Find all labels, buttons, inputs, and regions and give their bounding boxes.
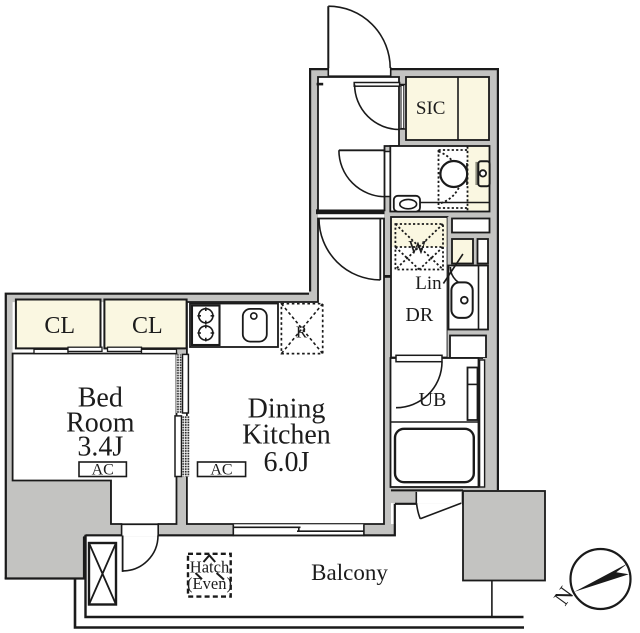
svg-text:AC: AC xyxy=(210,461,232,478)
svg-text:Lin: Lin xyxy=(415,273,442,294)
svg-text:R: R xyxy=(296,323,308,342)
svg-text:3.4J: 3.4J xyxy=(77,432,123,463)
svg-text:(Even): (Even) xyxy=(187,574,232,593)
svg-text:CL: CL xyxy=(44,313,75,339)
svg-text:SIC: SIC xyxy=(416,98,446,119)
svg-text:AC: AC xyxy=(92,461,114,478)
svg-text:UB: UB xyxy=(419,389,447,411)
svg-text:W: W xyxy=(409,238,427,259)
svg-text:DR: DR xyxy=(405,304,433,326)
svg-text:Kitchen: Kitchen xyxy=(242,420,331,451)
svg-text:Balcony: Balcony xyxy=(311,560,388,585)
svg-text:6.0J: 6.0J xyxy=(264,447,310,478)
svg-text:CL: CL xyxy=(132,313,163,339)
